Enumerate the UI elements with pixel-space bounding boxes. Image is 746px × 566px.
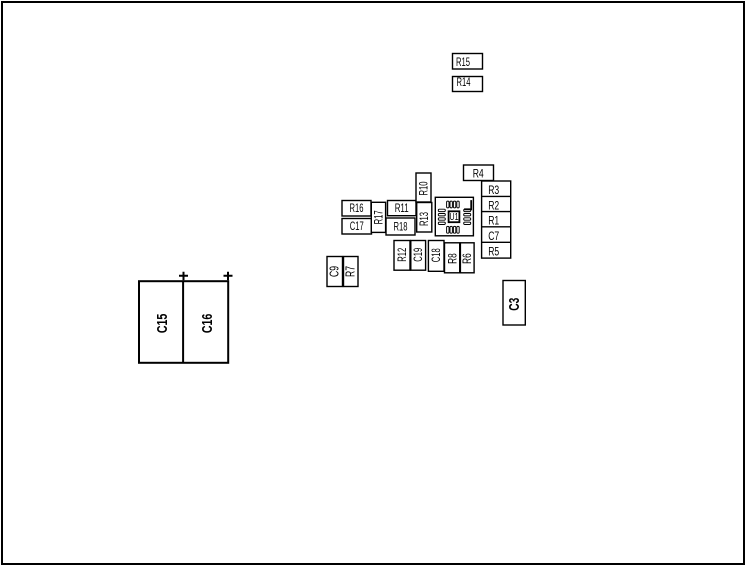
svg-text:R2: R2 xyxy=(488,200,499,212)
svg-text:R1: R1 xyxy=(488,216,499,228)
svg-text:R4: R4 xyxy=(473,169,484,181)
svg-text:C15: C15 xyxy=(154,314,171,334)
svg-text:C9: C9 xyxy=(328,266,342,277)
svg-text:R17: R17 xyxy=(373,210,385,224)
svg-text:R18: R18 xyxy=(394,222,408,234)
svg-text:R8: R8 xyxy=(447,253,459,264)
svg-text:C16: C16 xyxy=(199,314,216,334)
svg-text:R12: R12 xyxy=(397,248,409,262)
svg-text:R13: R13 xyxy=(419,212,431,226)
svg-text:C3: C3 xyxy=(506,298,523,311)
svg-text:C19: C19 xyxy=(413,248,425,262)
svg-text:C18: C18 xyxy=(431,248,443,262)
svg-text:C7: C7 xyxy=(488,231,499,243)
svg-text:R16: R16 xyxy=(350,203,364,215)
svg-text:R7: R7 xyxy=(344,266,358,277)
svg-text:R11: R11 xyxy=(395,203,409,215)
svg-text:R3: R3 xyxy=(488,185,499,197)
svg-text:C17: C17 xyxy=(350,221,364,233)
svg-text:R15: R15 xyxy=(456,57,470,69)
svg-text:R10: R10 xyxy=(419,182,431,196)
svg-text:R6: R6 xyxy=(462,253,474,264)
svg-text:R14: R14 xyxy=(457,77,471,89)
svg-text:R5: R5 xyxy=(488,247,499,259)
svg-text:U1: U1 xyxy=(450,211,459,223)
